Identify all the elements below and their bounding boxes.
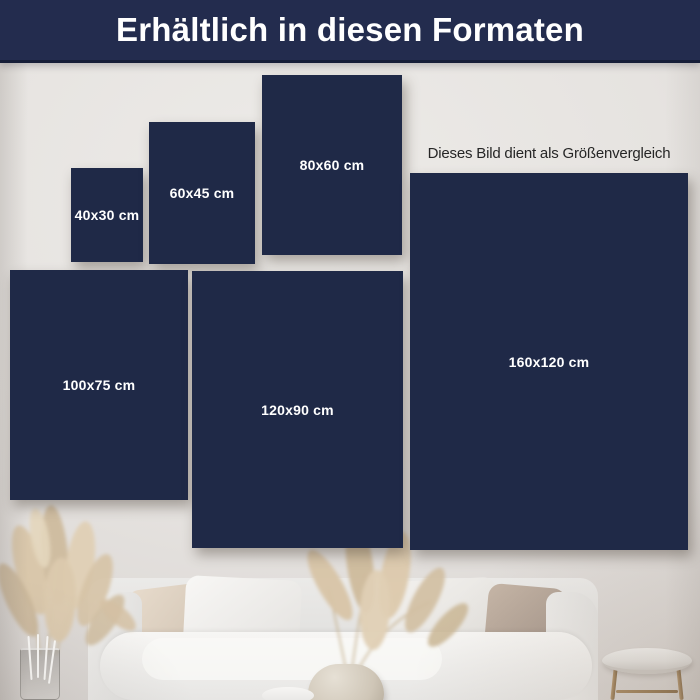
size-comparison-note: Dieses Bild dient als Größenvergleich [410,145,688,162]
white-bowl [262,687,314,700]
header-title: Erhältlich in diesen Formaten [116,11,584,49]
format-tile-80x60: 80x60 cm [262,75,402,255]
format-tile-160x120: 160x120 cm [410,173,688,550]
format-label: 80x60 cm [300,157,365,173]
side-table-ring [616,690,678,693]
format-label: 160x120 cm [509,354,590,370]
format-label: 120x90 cm [261,402,334,418]
pampas-grass-left [0,504,141,655]
glass-vase [20,648,60,700]
format-label: 40x30 cm [75,207,140,223]
format-tile-120x90: 120x90 cm [192,271,403,548]
header-banner: Erhältlich in diesen Formaten [0,0,700,63]
format-tile-60x45: 60x45 cm [149,122,255,264]
format-label: 100x75 cm [63,377,136,393]
format-tile-100x75: 100x75 cm [10,270,188,500]
stem [37,634,39,678]
side-table-top [602,648,692,674]
format-label: 60x45 cm [170,185,235,201]
size-comparison-graphic: 40x30 cm 60x45 cm 80x60 cm 100x75 cm 120… [0,0,700,700]
format-tile-40x30: 40x30 cm [71,168,143,262]
